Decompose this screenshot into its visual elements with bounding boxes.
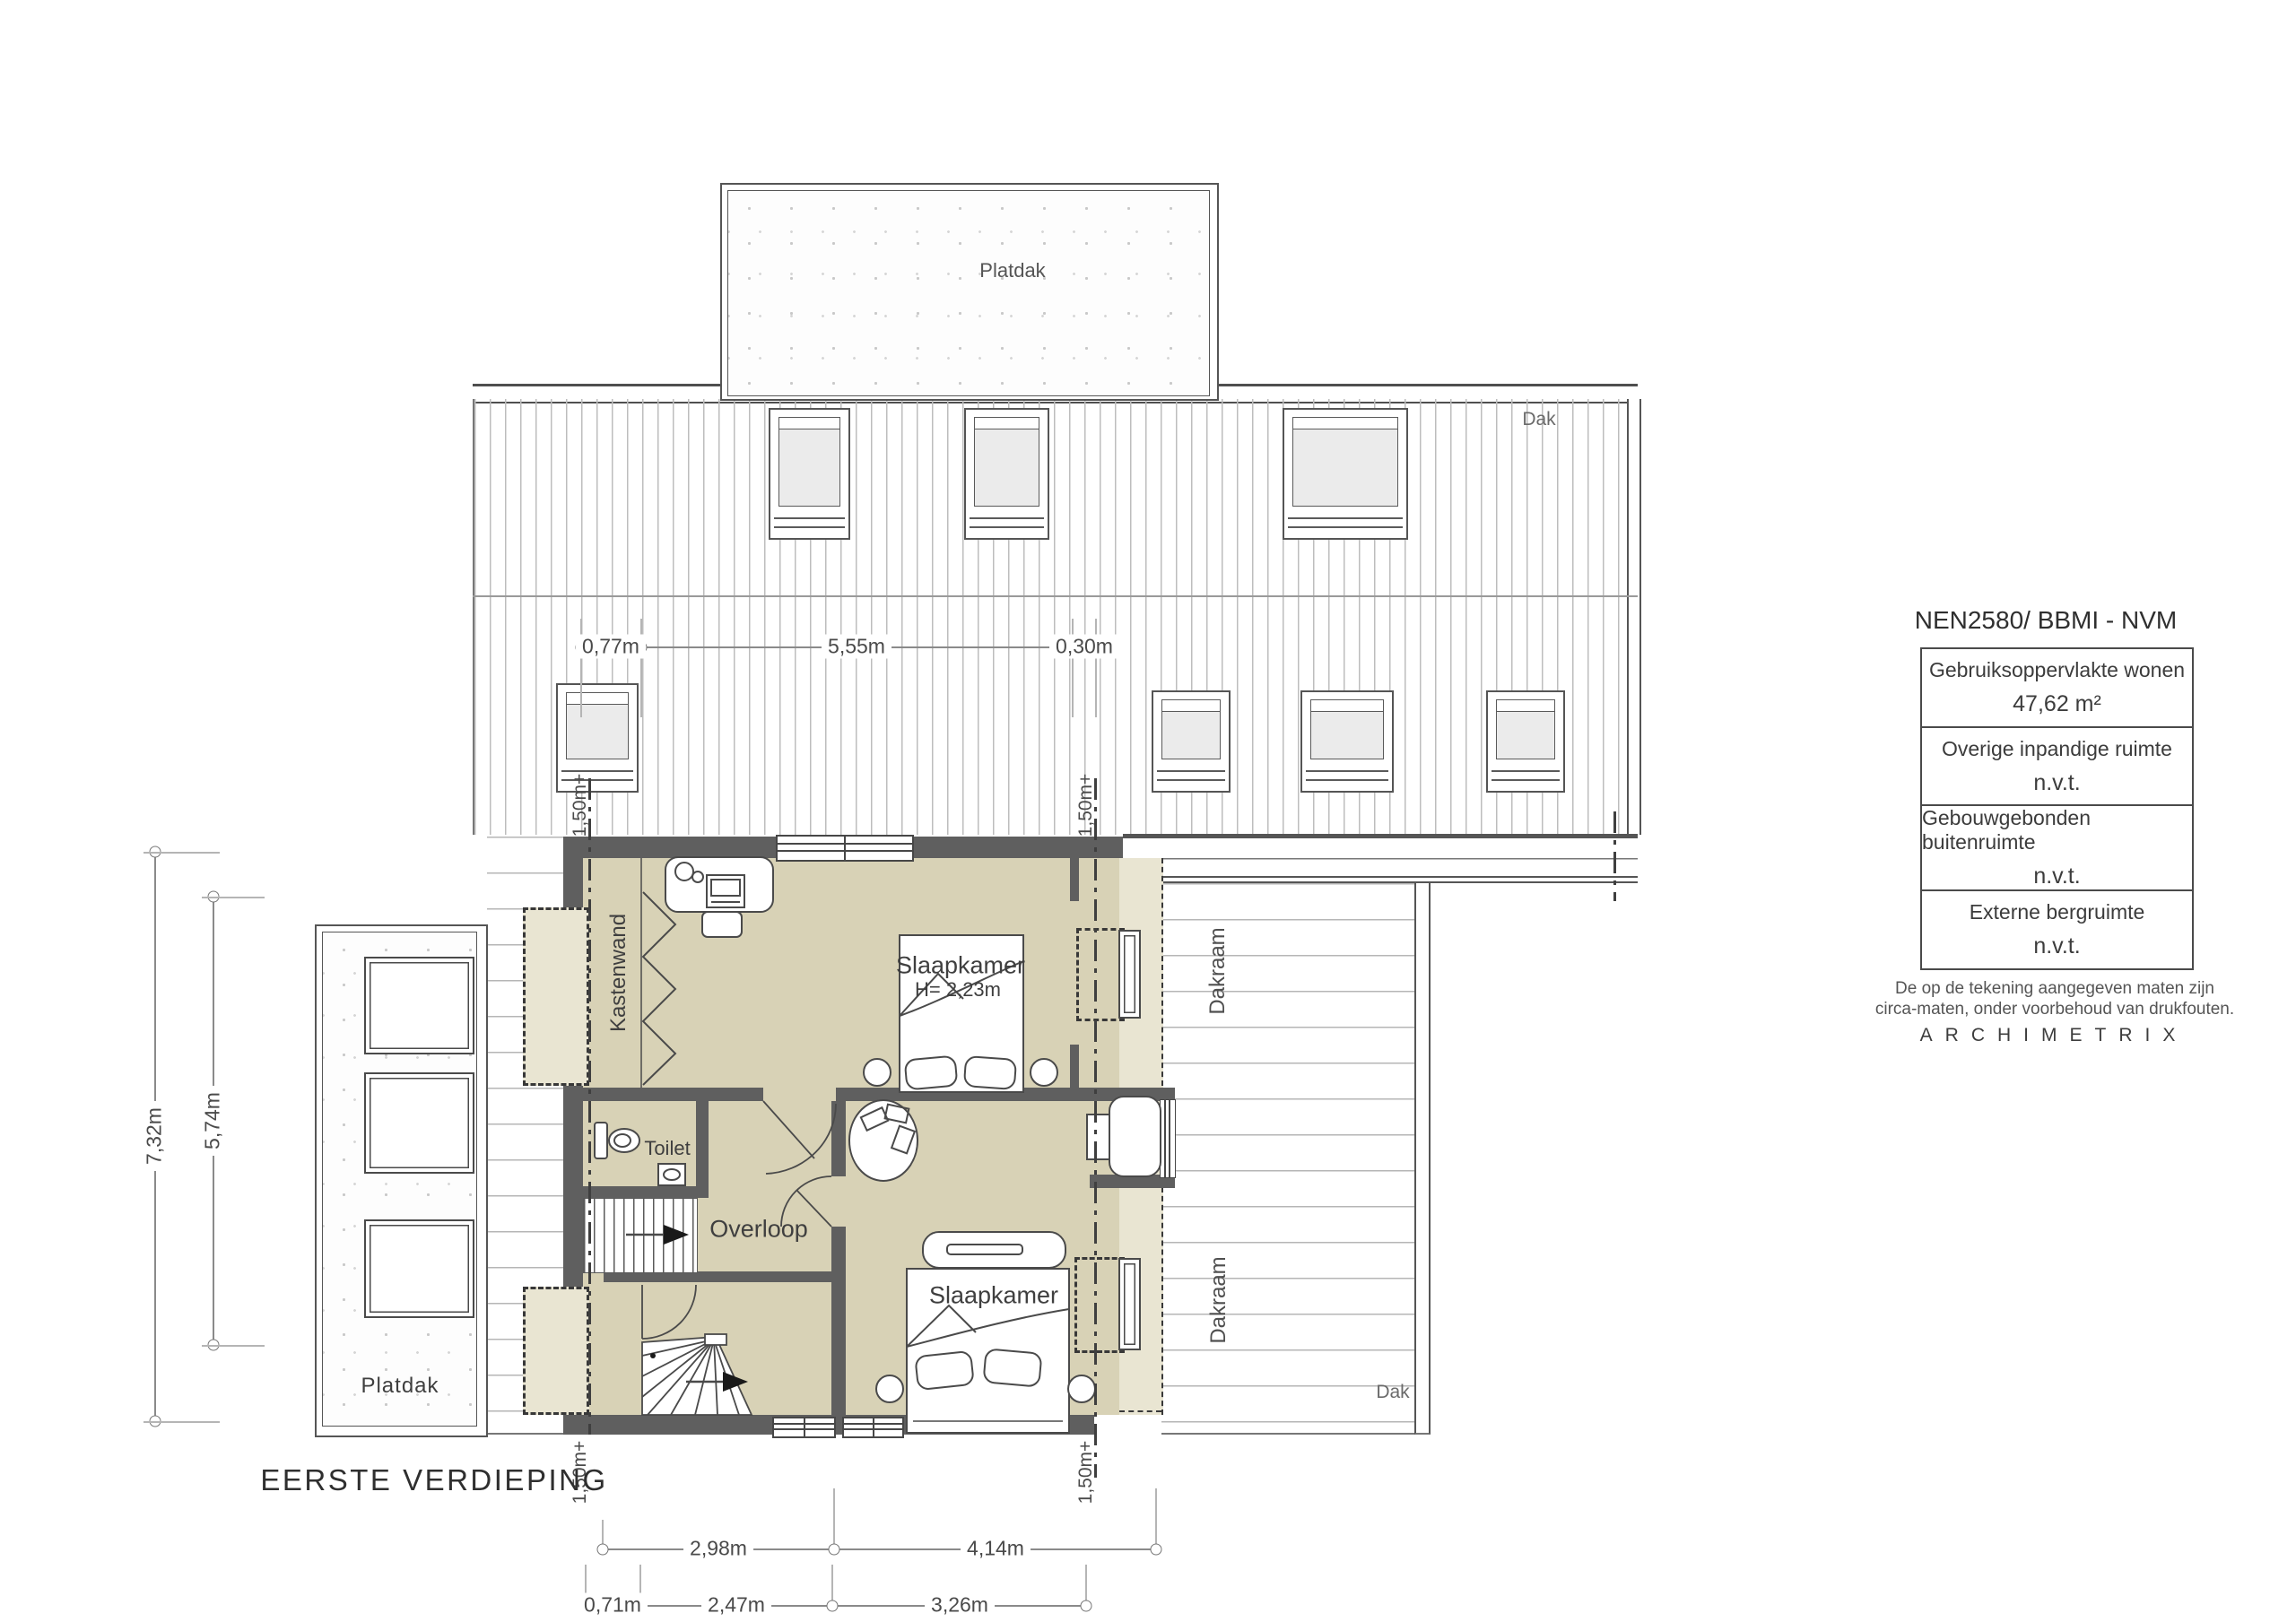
legend-row-value: n.v.t.: [2033, 770, 2080, 796]
dim-bottom1-2: 4,14m: [961, 1537, 1031, 1561]
legend-table: Gebruiksoppervlakte wonen 47,62 m² Overi…: [1920, 647, 2194, 970]
staircase-winder-icon: [642, 1334, 752, 1415]
desk-icon: [665, 857, 773, 937]
brand-archimetrix: ARCHIMETRIX: [1920, 1025, 2188, 1046]
dim-ext: [143, 1421, 220, 1423]
dim-ext: [143, 852, 220, 854]
legend-title: NEN2580/ BBMI - NVM: [1915, 606, 2178, 635]
dim-left-outer: 7,32m: [143, 1101, 167, 1171]
legend-row-externe: Externe bergruimte n.v.t.: [1922, 891, 2192, 968]
dim-ext: [1085, 1565, 1087, 1602]
level-label-top-left: 1,50m+: [570, 768, 591, 844]
legend-row-gebouwgebonden: Gebouwgebonden buitenruimte n.v.t.: [1922, 806, 2192, 891]
overloop-label: Overloop: [709, 1216, 808, 1244]
platdak-window-1: [364, 957, 474, 1054]
bedroom1-label: Slaapkamer: [896, 952, 1025, 980]
floor-title: EERSTE VERDIEPING: [260, 1463, 607, 1497]
legend-note-line2: circa-maten, onder voorbehoud van drukfo…: [1875, 1000, 2234, 1019]
legend-row-value: n.v.t.: [2033, 933, 2080, 959]
kastenwand-label: Kastenwand: [606, 914, 631, 1032]
dim-tick: [597, 1544, 609, 1556]
door-swing-stairroom: [642, 1285, 696, 1339]
dim-ext: [1155, 1488, 1157, 1544]
dim-tick: [827, 1600, 839, 1612]
legend-row-value: 47,62 m²: [2013, 691, 2101, 717]
armchair-icon: [849, 1100, 918, 1181]
door-swing-bedroom1: [763, 1101, 836, 1174]
legend-row-label: Gebouwgebonden buitenruimte: [1922, 806, 2192, 854]
level-line-right: [1094, 778, 1097, 1478]
dim-bottom2-2: 2,47m: [701, 1593, 771, 1618]
dim-bottom2-1: 0,71m: [578, 1593, 648, 1618]
toilet-label: Toilet: [644, 1137, 690, 1160]
legend-row-label: Gebruiksoppervlakte wonen: [1929, 658, 2185, 682]
platdak-left-label: Platdak: [361, 1374, 439, 1399]
legend-note-line1: De op de tekening aangegeven maten zijn: [1895, 979, 2214, 999]
platdak-window-3: [364, 1219, 474, 1318]
level-label-top-right: 1,50m+: [1075, 768, 1097, 844]
dresser-bay-icon: [1087, 1097, 1161, 1176]
dim-tick: [1151, 1544, 1162, 1556]
dim-ext: [602, 1520, 604, 1544]
dim-left-inner: 5,74m: [201, 1086, 225, 1156]
legend-row-gebruiksoppervlakte: Gebruiksoppervlakte wonen 47,62 m²: [1922, 649, 2192, 728]
dim-ext: [831, 1565, 833, 1602]
dim-tick: [1081, 1600, 1092, 1612]
legend-row-value: n.v.t.: [2033, 863, 2080, 889]
level-label-bottom-right: 1,50m+: [1075, 1435, 1097, 1511]
dim-ext: [202, 897, 265, 898]
bedroom1-height-label: H= 2,23m: [915, 978, 1001, 1002]
legend-row-overige: Overige inpandige ruimte n.v.t.: [1922, 728, 2192, 807]
dim-ext: [833, 1488, 835, 1544]
level-line-left: [588, 778, 591, 1435]
dim-bottom1-1: 2,98m: [683, 1537, 753, 1561]
sideboard-icon: [923, 1232, 1065, 1268]
floorplan-canvas: Platdak Dak 0,77m 5,55m 0,30m Dakraam: [0, 0, 2296, 1622]
stair-direction-arrow: [626, 1225, 689, 1245]
bedroom2-label: Slaapkamer: [929, 1282, 1058, 1310]
dim-tick: [829, 1544, 840, 1556]
dim-ext: [202, 1345, 265, 1347]
dim-bottom2-3: 3,26m: [925, 1593, 995, 1618]
legend-row-label: Externe bergruimte: [1970, 900, 2145, 924]
legend-row-label: Overige inpandige ruimte: [1942, 737, 2172, 761]
platdak-window-2: [364, 1072, 474, 1174]
